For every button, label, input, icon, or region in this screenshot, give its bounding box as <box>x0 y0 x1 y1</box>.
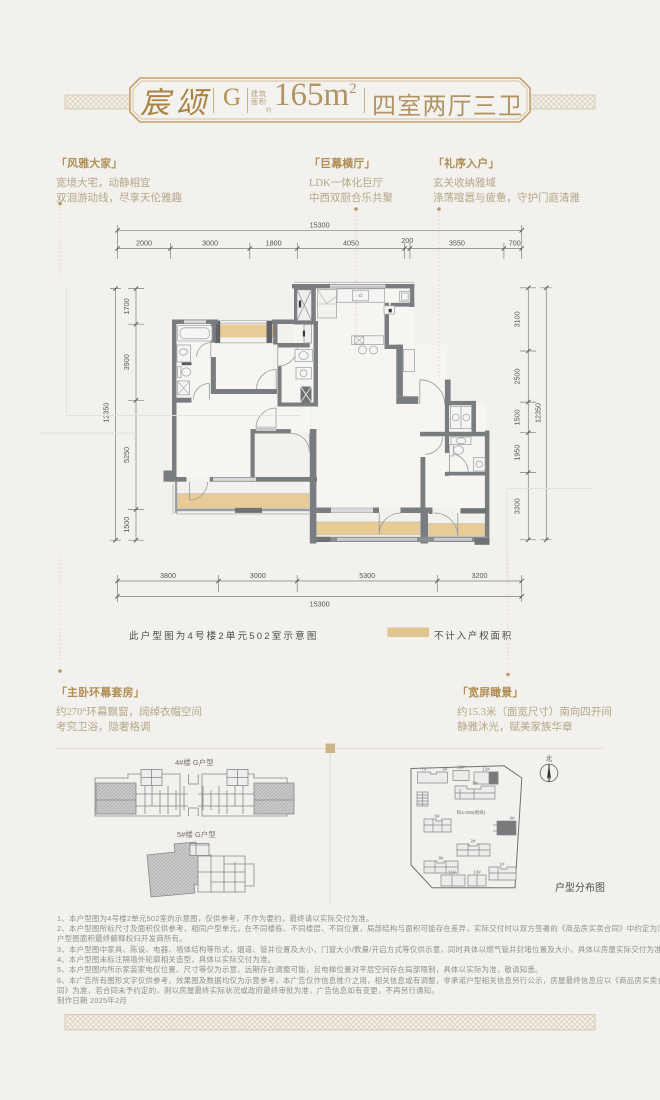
svg-text:12#: 12# <box>482 767 490 772</box>
svg-text:3000: 3000 <box>202 239 218 248</box>
svg-text:5#: 5# <box>472 781 478 786</box>
svg-text:1500: 1500 <box>122 517 131 533</box>
svg-text:3200: 3200 <box>472 571 488 580</box>
svg-text:12350: 12350 <box>534 403 543 423</box>
svg-text:3000: 3000 <box>250 571 266 580</box>
svg-text:200: 200 <box>401 236 413 245</box>
svg-text:6#: 6# <box>434 814 440 819</box>
svg-text:5250: 5250 <box>122 447 131 463</box>
svg-text:3900: 3900 <box>122 354 131 370</box>
svg-text:700: 700 <box>509 239 521 248</box>
svg-text:13#: 13# <box>473 870 481 875</box>
svg-text:北: 北 <box>546 755 553 763</box>
svg-text:1#: 1# <box>499 862 505 867</box>
svg-text:4#: 4# <box>509 816 515 821</box>
svg-text:4050: 4050 <box>343 239 359 248</box>
svg-text:9#: 9# <box>442 767 448 772</box>
svg-text:1950: 1950 <box>513 445 522 461</box>
svg-text:3100: 3100 <box>513 311 522 327</box>
svg-text:科4-006(地块): 科4-006(地块) <box>457 809 486 816</box>
svg-text:2#: 2# <box>470 839 476 844</box>
svg-text:3800: 3800 <box>160 571 176 580</box>
svg-text:5300: 5300 <box>359 571 375 580</box>
svg-text:3300: 3300 <box>513 498 522 514</box>
svg-text:15300: 15300 <box>310 600 330 609</box>
svg-text:11#: 11# <box>448 870 456 875</box>
svg-text:1700: 1700 <box>122 298 131 314</box>
svg-text:2000: 2000 <box>136 239 152 248</box>
svg-text:2500: 2500 <box>513 369 522 385</box>
svg-text:8#: 8# <box>438 856 444 861</box>
svg-text:10#: 10# <box>457 765 465 770</box>
svg-text:1500: 1500 <box>513 409 522 425</box>
svg-text:15300: 15300 <box>310 221 330 230</box>
svg-text:7#: 7# <box>421 767 427 772</box>
svg-text:12350: 12350 <box>102 403 111 423</box>
svg-text:1800: 1800 <box>266 239 282 248</box>
svg-text:3550: 3550 <box>449 239 465 248</box>
